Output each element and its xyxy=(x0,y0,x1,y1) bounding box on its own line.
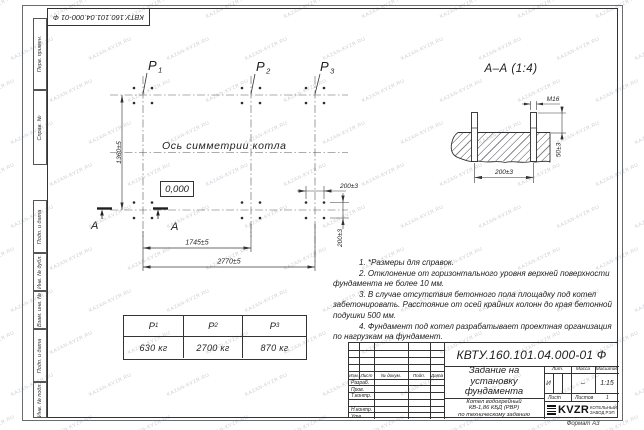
note-1: 1. *Размеры для справок. xyxy=(333,258,614,269)
load-table-value-p1: 630 кг xyxy=(124,337,184,358)
arrowhead xyxy=(143,246,151,249)
dim-bolt-x xyxy=(297,186,346,199)
note-3: 3. В случае отсутствия бетонного пола пл… xyxy=(333,290,614,322)
tb-row-nkontr: Н.контр. xyxy=(351,407,372,413)
thread-label: М16 xyxy=(547,96,560,103)
tb-col-podp: Подп. xyxy=(408,373,430,378)
tb-row-prov: Пров. xyxy=(351,387,364,393)
arrowhead xyxy=(120,203,123,211)
tb-doc-number: КВТУ.160.101.04.000-01 Ф xyxy=(444,343,619,366)
arrowhead xyxy=(341,196,344,203)
load-table-header-p3: P3 xyxy=(243,316,306,337)
anchor-bolt-dots xyxy=(133,87,326,220)
kvzr-logo-text: KVZR xyxy=(558,404,589,416)
arrowhead xyxy=(524,103,531,106)
arrowhead xyxy=(120,95,123,103)
tb-col-data: Дата xyxy=(430,373,444,378)
drawing-sheet: KAZAN-KVZR.RUKAZAN-KVZR.RUKAZAN-KVZR.RUK… xyxy=(0,0,644,430)
arrowhead xyxy=(244,246,252,249)
dim-1360-text: 1360±5 xyxy=(116,141,123,164)
arrowhead xyxy=(560,133,563,139)
technical-notes: 1. *Размеры для справок. 2. Отклонение о… xyxy=(333,258,614,343)
dim-1745-text: 1745±5 xyxy=(185,240,208,247)
arrowhead xyxy=(475,176,483,179)
arrowhead xyxy=(560,107,563,113)
tb-title: Задание на установку фундамента xyxy=(444,366,544,398)
load-table-value-p2: 2700 кг xyxy=(184,337,243,358)
arrowhead xyxy=(156,210,160,216)
section-letter-right: А xyxy=(170,221,178,233)
tb-mass-value: – xyxy=(571,373,595,393)
arrowhead xyxy=(143,265,151,268)
tb-row-tkontr: Т.контр. xyxy=(351,393,371,399)
load-table: P1 P2 P3 630 кг 2700 кг 870 кг xyxy=(123,315,307,360)
dim-bolt-y xyxy=(330,193,349,229)
tb-lit-label: Лит. xyxy=(544,366,571,373)
tb-row-utv: Утв. xyxy=(351,414,362,420)
tb-sheets-value: 1 xyxy=(606,395,609,401)
load-label-p3: P3 xyxy=(320,59,335,76)
tb-mass-label: Масса xyxy=(571,366,595,373)
tb-col-izm: Изм. xyxy=(349,373,359,378)
load-point-leaders xyxy=(143,73,320,94)
plan-centerlines xyxy=(110,76,348,262)
load-label-p1: P1 xyxy=(148,58,162,75)
tb-scale-label: Масштаб xyxy=(595,366,619,373)
tb-lit-value: И xyxy=(544,373,553,393)
arrowhead xyxy=(308,265,316,268)
arrowhead xyxy=(324,189,332,192)
tb-subject: Котел водогрейный КВ-1,86 КБД (РВР) по т… xyxy=(444,398,544,419)
tb-subject-line: по техническому заданию xyxy=(458,412,530,419)
section-letter-left: А xyxy=(90,220,98,232)
kvzr-logo-caption: КОТЕЛЬНЫЙ ЗАВОД РЭП xyxy=(590,405,617,415)
section-view-title: А–А (1:4) xyxy=(483,63,537,75)
tb-subject-line: КВ-1,86 КБД (РВР) xyxy=(469,405,519,412)
dim-200-section-text: 200±3 xyxy=(494,169,513,176)
tb-subject-line: Котел водогрейный xyxy=(466,399,521,406)
arrowhead xyxy=(100,210,104,216)
load-table-value-p3: 870 кг xyxy=(243,337,306,358)
arrowhead xyxy=(299,189,307,192)
tb-row-razrab: Разраб. xyxy=(351,380,369,386)
dim-bolt-y-text: 200±3 xyxy=(337,229,344,248)
arrowhead xyxy=(526,176,534,179)
dim-bolt-x-text: 200±3 xyxy=(339,183,358,190)
arrowhead xyxy=(341,218,344,225)
tb-col-list: Лист xyxy=(359,373,374,378)
kvzr-logo-icon xyxy=(547,405,556,416)
dim-2770-text: 2770±5 xyxy=(216,259,240,266)
arrowhead xyxy=(537,103,544,106)
kvzr-caption-line: ЗАВОД РЭП xyxy=(590,410,617,415)
title-block: Изм. Лист № докум. Подп. Дата Разраб. Пр… xyxy=(348,342,618,418)
tb-col-doc: № докум. xyxy=(374,373,408,378)
elevation-value: 0,000 xyxy=(165,184,189,195)
symmetry-axis-label: Ось симметрии котла xyxy=(162,140,287,152)
format-note: Формат А3 xyxy=(548,421,618,427)
elevation-box: 0,000 xyxy=(160,181,194,197)
tb-sheets-label: Листов xyxy=(575,395,593,401)
note-4: 4. Фундамент под котел разрабатывает про… xyxy=(333,322,614,343)
tb-scale-value: 1:15 xyxy=(595,373,619,393)
load-table-header-p2: P2 xyxy=(184,316,243,337)
tb-sheet-label: Лист xyxy=(548,395,561,401)
anchor-bolts-section xyxy=(472,113,537,162)
tb-title-line: фундамента xyxy=(465,387,523,398)
note-2: 2. Отклонение от горизонтального уровня … xyxy=(333,269,614,290)
load-label-p2: P2 xyxy=(256,59,271,76)
dim-50-text: 50±3 xyxy=(556,142,563,157)
load-table-header-p1: P1 xyxy=(124,316,184,337)
